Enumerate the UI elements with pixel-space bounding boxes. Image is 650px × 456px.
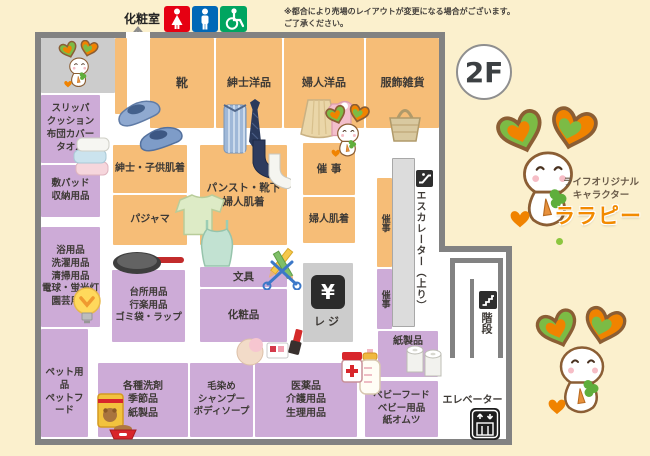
socks-icon xyxy=(245,138,291,190)
stairs-wall xyxy=(470,279,474,358)
section-event-3: 催事 xyxy=(377,269,392,329)
basket-icon xyxy=(385,98,425,146)
mascot-small-icon xyxy=(322,104,374,162)
linens-icon xyxy=(68,134,112,184)
cosmetics-icon xyxy=(235,325,305,369)
mascot-name-dot xyxy=(556,238,563,245)
medicine-icon xyxy=(338,350,366,384)
shoes-icon xyxy=(112,92,187,154)
lightbulb-icon xyxy=(70,286,104,330)
floor-map-page: 化粧室 ※都合により売場のレイアウトが変更になる場合がございます。 ご了承くださ… xyxy=(0,0,650,456)
toilet-paper-icon xyxy=(404,342,444,380)
mascot-name-wrap: ララピー xyxy=(554,200,650,249)
elevator-label: エレベーター xyxy=(439,391,506,406)
stairs-wall xyxy=(498,258,503,358)
section-hair-body: 毛染め シャンプー ボディソープ xyxy=(190,363,253,437)
stairs-wall xyxy=(450,258,503,263)
mascot-caption: ライフオリジナル キャラクター xyxy=(556,176,646,203)
elevator-icon xyxy=(470,408,500,440)
yen-icon: ¥ xyxy=(311,275,345,309)
register-area: ¥ レジ xyxy=(303,263,353,342)
stairs-wall xyxy=(450,258,455,358)
pet-food-icon xyxy=(92,392,140,442)
stairs-label: 階段 xyxy=(478,312,494,334)
section-womens-underwear: 婦人肌着 xyxy=(303,197,355,243)
stairs-icon xyxy=(479,291,497,309)
wheelchair-icon xyxy=(220,6,247,32)
section-kitchen: 台所用品 行楽用品 ゴミ袋・ラップ xyxy=(112,270,185,342)
disclaimer-text: ※都合により売場のレイアウトが変更になる場合がございます。 ご了承ください。 xyxy=(284,6,624,31)
restroom-men-icon xyxy=(192,6,218,32)
escalator-icon xyxy=(416,170,433,187)
escalator-area xyxy=(392,158,415,327)
floor-badge: 2F xyxy=(456,44,512,100)
section-pet: ペット用品 ペットフード xyxy=(41,329,88,437)
escalator-label: エスカレーター（上り） xyxy=(414,190,424,330)
section-event-2: 催事 xyxy=(377,178,392,267)
stationery-icon xyxy=(258,246,306,290)
mascot-bottom-icon xyxy=(532,303,632,428)
mascot-name: ララピー xyxy=(554,204,642,228)
mascot-small-icon xyxy=(55,40,103,92)
entrance-gap xyxy=(126,32,150,38)
restroom-women-icon xyxy=(164,6,190,32)
register-label: レジ xyxy=(303,315,353,330)
frying-pan-icon xyxy=(112,248,186,278)
